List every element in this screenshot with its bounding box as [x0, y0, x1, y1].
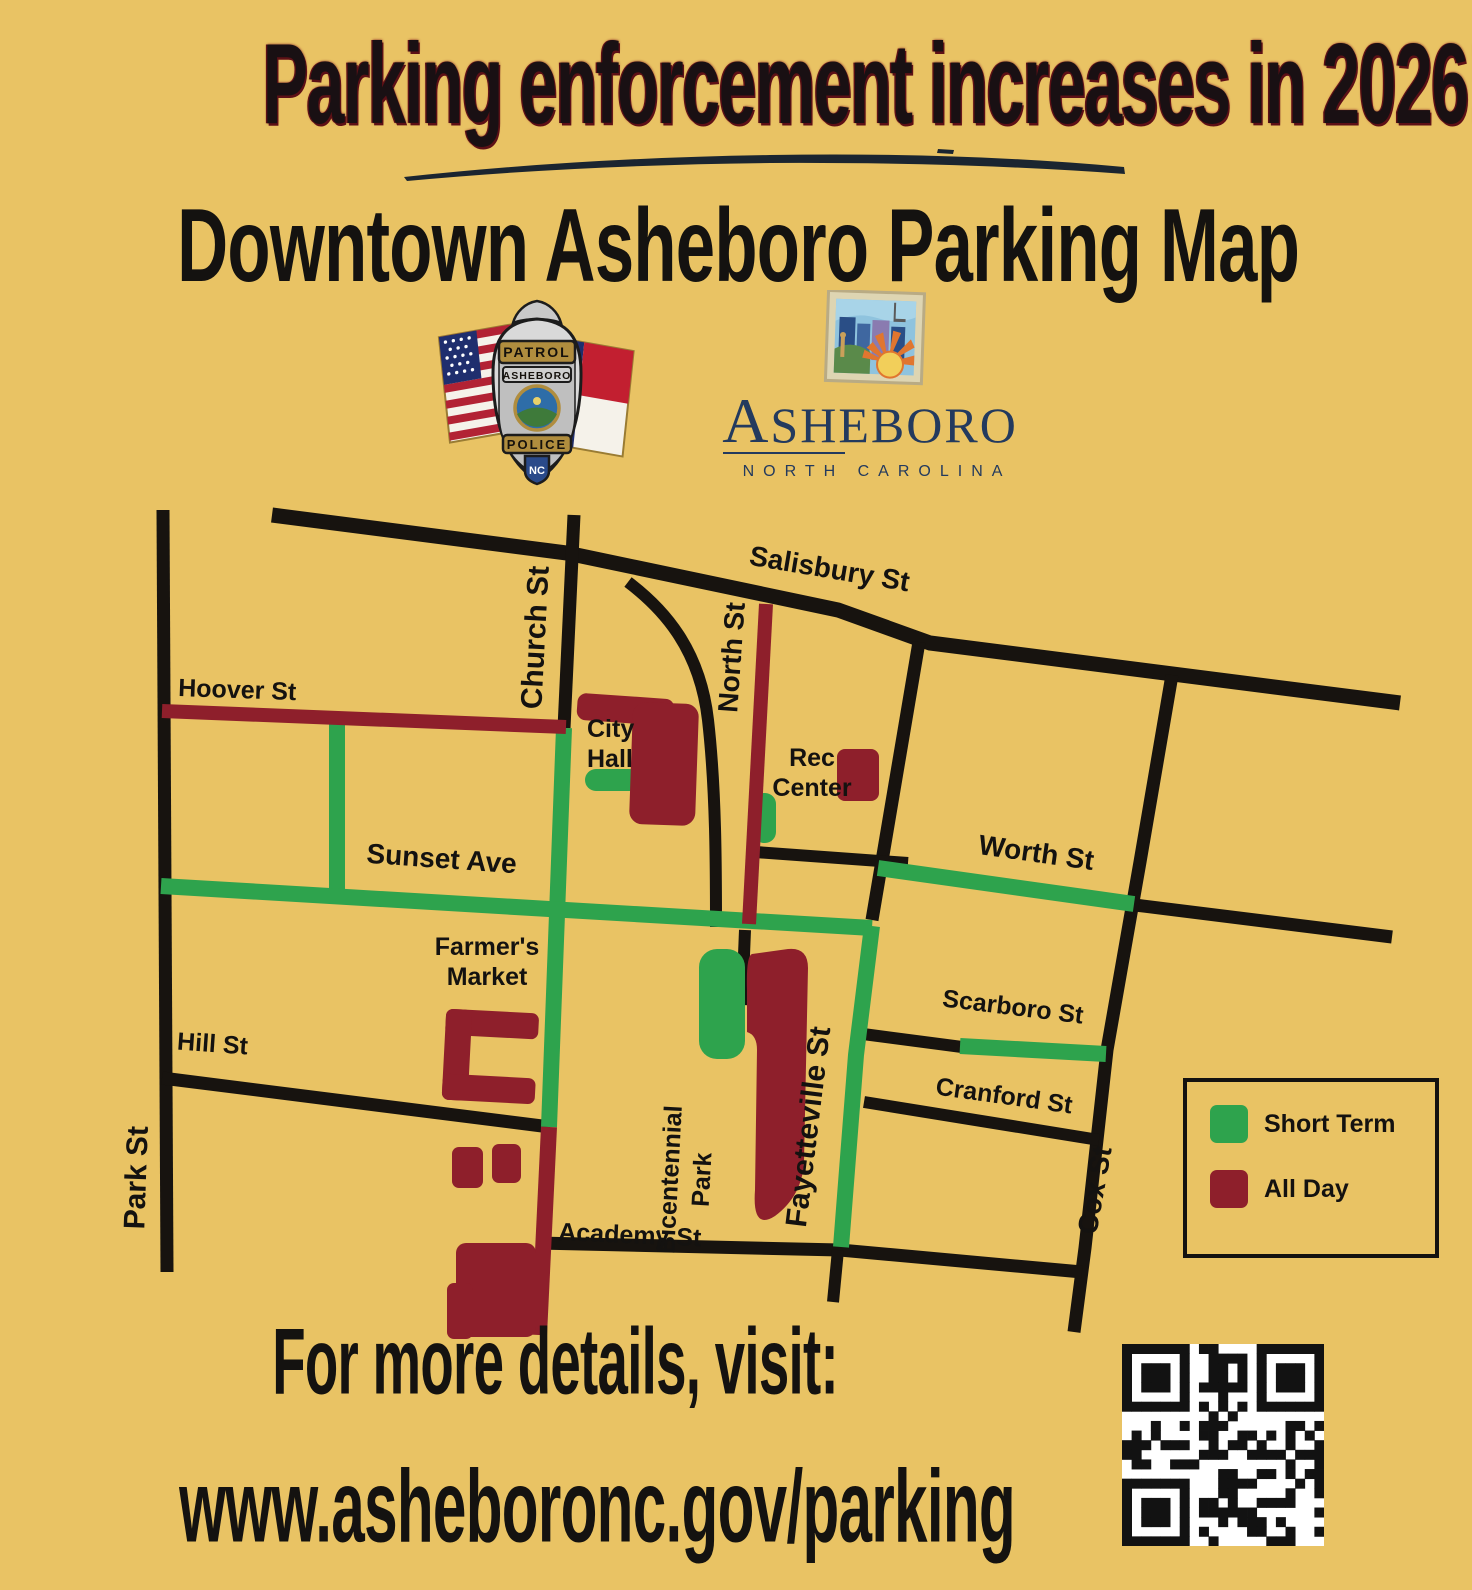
map-legend: Short Term All Day: [1185, 1080, 1437, 1256]
label-bicentennial-line2: Park: [687, 1152, 718, 1208]
shortterm-sunset: [161, 886, 872, 928]
allday-hoover: [162, 711, 566, 727]
street-salisbury: [272, 515, 1400, 703]
page-title-text: Parking enforcement increases in 2026!: [263, 18, 1472, 150]
label-park: Park St: [118, 1125, 155, 1229]
page-title: Parking enforcement increases in 2026!: [0, 28, 1472, 140]
asheboro-city-logo: ASHEBORO NORTH CAROLINA: [705, 290, 1035, 490]
label-scarboro: Scarboro St: [941, 985, 1086, 1030]
label-worth: Worth St: [977, 829, 1096, 876]
parking-flyer: Parking enforcement increases in 2026! D…: [0, 0, 1472, 1590]
city-logo-wordmark: ASHEBORO: [722, 385, 1018, 456]
street-fayetteville-south-stub: [833, 1250, 838, 1302]
badge-patrol-text: PATROL: [503, 344, 570, 360]
allday-church-south: [539, 1127, 549, 1335]
label-rec-center-line1: Rec: [789, 744, 835, 772]
badge-nc-text: NC: [529, 465, 545, 477]
qr-code: [1122, 1344, 1324, 1546]
wordmark-rest: SHEBORO: [770, 397, 1017, 453]
label-hill: Hill St: [176, 1028, 249, 1061]
label-hoover: Hoover St: [178, 674, 298, 706]
legend-short-term-label: Short Term: [1264, 1110, 1396, 1138]
label-rec-center-line2: Center: [772, 774, 851, 802]
footer-line1: For more details, visit:: [0, 1316, 1110, 1407]
shortterm-fayetteville: [841, 926, 872, 1247]
legend-all-day-label: All Day: [1264, 1175, 1349, 1203]
badge-police-text: POLICE: [507, 437, 567, 452]
street-scarboro-west-segment: [863, 1034, 962, 1047]
label-north: North St: [712, 601, 751, 713]
page-subtitle: Downtown Asheboro Parking Map: [0, 192, 1472, 299]
label-church: Church St: [515, 565, 555, 710]
footer-line2: www.asheboronc.gov/parking: [0, 1458, 1110, 1557]
street-worth-east-segment: [1135, 905, 1392, 937]
parking-map: Salisbury St Church St North St Hoover S…: [0, 490, 1472, 1350]
label-farmers-market-line1: Farmer's: [435, 933, 540, 961]
allday-farmers-market-lot: [442, 1009, 540, 1105]
city-logo-picture: [825, 290, 924, 383]
shortterm-scarboro: [960, 1046, 1106, 1054]
allday-small-lot-1: [452, 1147, 483, 1188]
allday-north: [749, 604, 766, 924]
label-city-hall-line1: City: [587, 715, 634, 743]
badge-city-text: ASHEBORO: [503, 370, 572, 382]
page-subtitle-text: Downtown Asheboro Parking Map: [177, 186, 1299, 306]
wordmark-initial: A: [722, 385, 770, 456]
legend-short-term-swatch: [1210, 1105, 1248, 1143]
label-city-hall-line2: Hall: [587, 745, 633, 773]
police-badge-logo: NC PATROL ASHEBORO POLICE NC: [437, 293, 637, 488]
label-sunset: Sunset Ave: [366, 838, 518, 879]
shortterm-worth: [878, 868, 1134, 904]
shortterm-church: [549, 728, 564, 1127]
legend-all-day-swatch: [1210, 1170, 1248, 1208]
footer-line2-text: www.asheboronc.gov/parking: [179, 1448, 1015, 1567]
footer-line1-text: For more details, visit:: [272, 1307, 838, 1416]
shortterm-bicentennial-lot: [699, 949, 745, 1059]
allday-small-lot-2: [492, 1144, 521, 1183]
city-logo-tagline: NORTH CAROLINA: [743, 463, 1012, 480]
underline-swoosh: [398, 146, 1138, 190]
label-farmers-market-line2: Market: [447, 963, 528, 991]
label-cox: Cox St: [1072, 1144, 1118, 1237]
